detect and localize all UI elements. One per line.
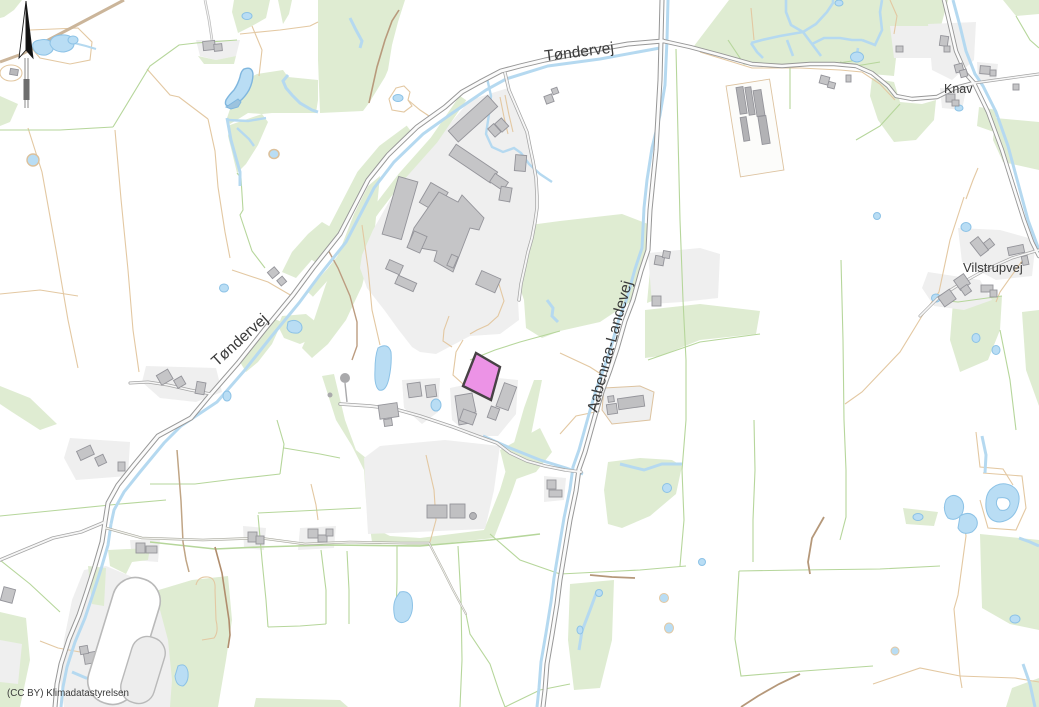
svg-text:(CC BY) Klimadatastyrelsen: (CC BY) Klimadatastyrelsen: [7, 688, 129, 699]
svg-text:Knav: Knav: [944, 82, 973, 96]
svg-text:Vilstrupvej: Vilstrupvej: [963, 260, 1023, 275]
